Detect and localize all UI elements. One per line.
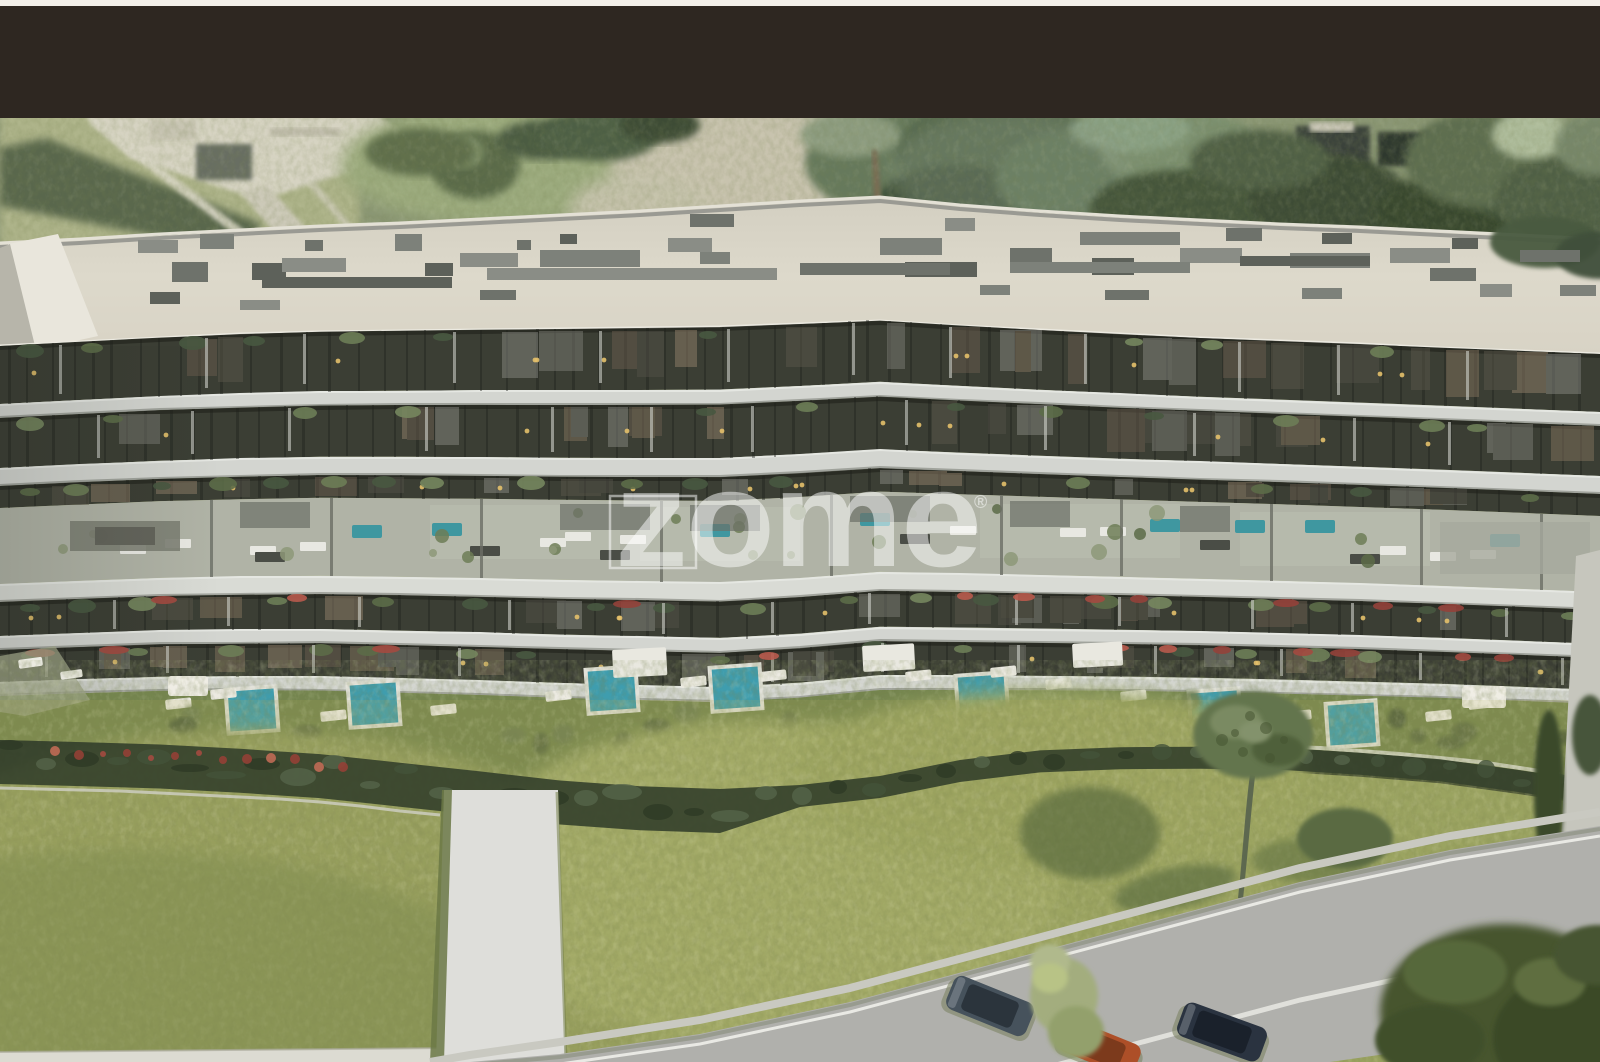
svg-text:zome: zome <box>615 442 980 596</box>
svg-text:®: ® <box>974 492 987 512</box>
